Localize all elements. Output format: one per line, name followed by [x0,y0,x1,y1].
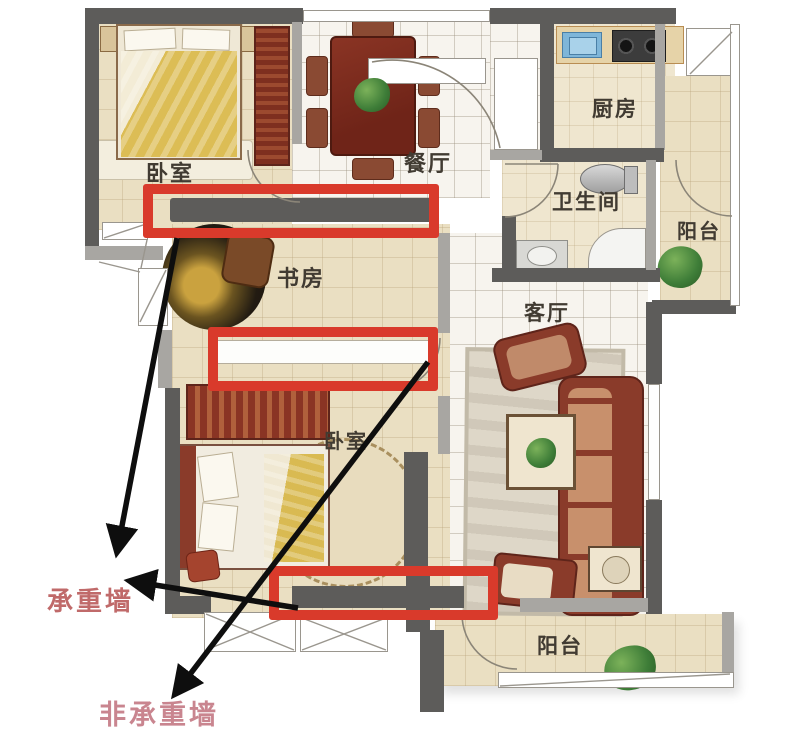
window [498,672,734,688]
dining-chair [418,108,440,148]
washing-machine [686,28,734,76]
wall-segment [438,396,450,454]
plant-icon [526,438,556,468]
wall-segment [165,388,180,610]
window [138,268,168,326]
highlight-box-bottom [269,566,498,620]
room-label-bathroom: 卫生间 [552,192,621,213]
wall-segment [85,8,303,24]
wall-segment [404,452,428,568]
plant-icon [354,78,390,112]
wall-segment [158,330,172,388]
window [730,24,740,306]
bench-cushion [500,563,553,602]
window [303,10,490,22]
lamp [602,556,630,584]
wall-segment [652,300,736,314]
room-label-dining: 餐厅 [404,154,452,176]
wall-segment [292,22,302,144]
room-label-bedroom-bottom: 卧室 [324,431,368,451]
dining-chair [352,158,394,180]
wardrobe [254,26,290,166]
wall-segment [646,500,662,614]
room-label-study: 书房 [277,269,325,291]
floor-plan-annotated: 卧室 餐厅 厨房 卫生间 阳台 书房 客厅 卧室 阳台 承重墙 非承重墙 [0,0,810,747]
dining-chair [306,108,328,148]
basin [527,246,557,266]
sink-basin [569,37,597,55]
cushion [505,333,573,381]
room-label-bedroom-top: 卧室 [146,164,194,186]
dresser [186,384,330,440]
kitchen-sink [562,32,602,58]
entry-cabinet [368,58,486,84]
wall-segment [540,22,554,150]
annotation-label-load-bearing: 承重墙 [47,589,134,615]
side-table [588,546,642,592]
bed [116,24,242,160]
annotation-label-non-load-bearing: 非承重墙 [99,702,219,729]
pillow [123,28,176,52]
wall-segment [438,233,450,333]
room-label-living: 客厅 [524,303,570,324]
room-label-balcony-bottom: 阳台 [537,636,583,657]
wall-segment [520,598,648,612]
desk-chair [220,230,276,290]
headboard [180,446,196,568]
pillow [182,28,231,51]
blanket [264,454,324,562]
wall-segment [420,630,444,712]
window [300,616,388,652]
room-label-balcony-top: 阳台 [677,221,721,241]
wall-segment [85,8,99,258]
wall-segment [502,216,516,272]
bedside-chair [185,549,221,583]
wall-segment [490,8,676,24]
window [102,222,148,240]
wall-segment [655,24,665,150]
pillow [198,502,239,552]
highlight-box-top [143,184,439,238]
wall-segment [490,150,542,160]
wall-segment [646,160,656,270]
highlight-box-middle [208,327,438,391]
wall-segment [646,302,662,384]
shoe-cabinet [494,58,538,150]
dining-chair [306,56,328,96]
wall-segment [492,268,660,282]
wall-segment [85,246,163,260]
bathroom-vanity [516,240,568,270]
window [648,384,660,500]
pillow [197,452,239,503]
room-label-kitchen: 厨房 [592,99,638,120]
toilet-tank [624,166,638,194]
blanket [121,51,237,157]
